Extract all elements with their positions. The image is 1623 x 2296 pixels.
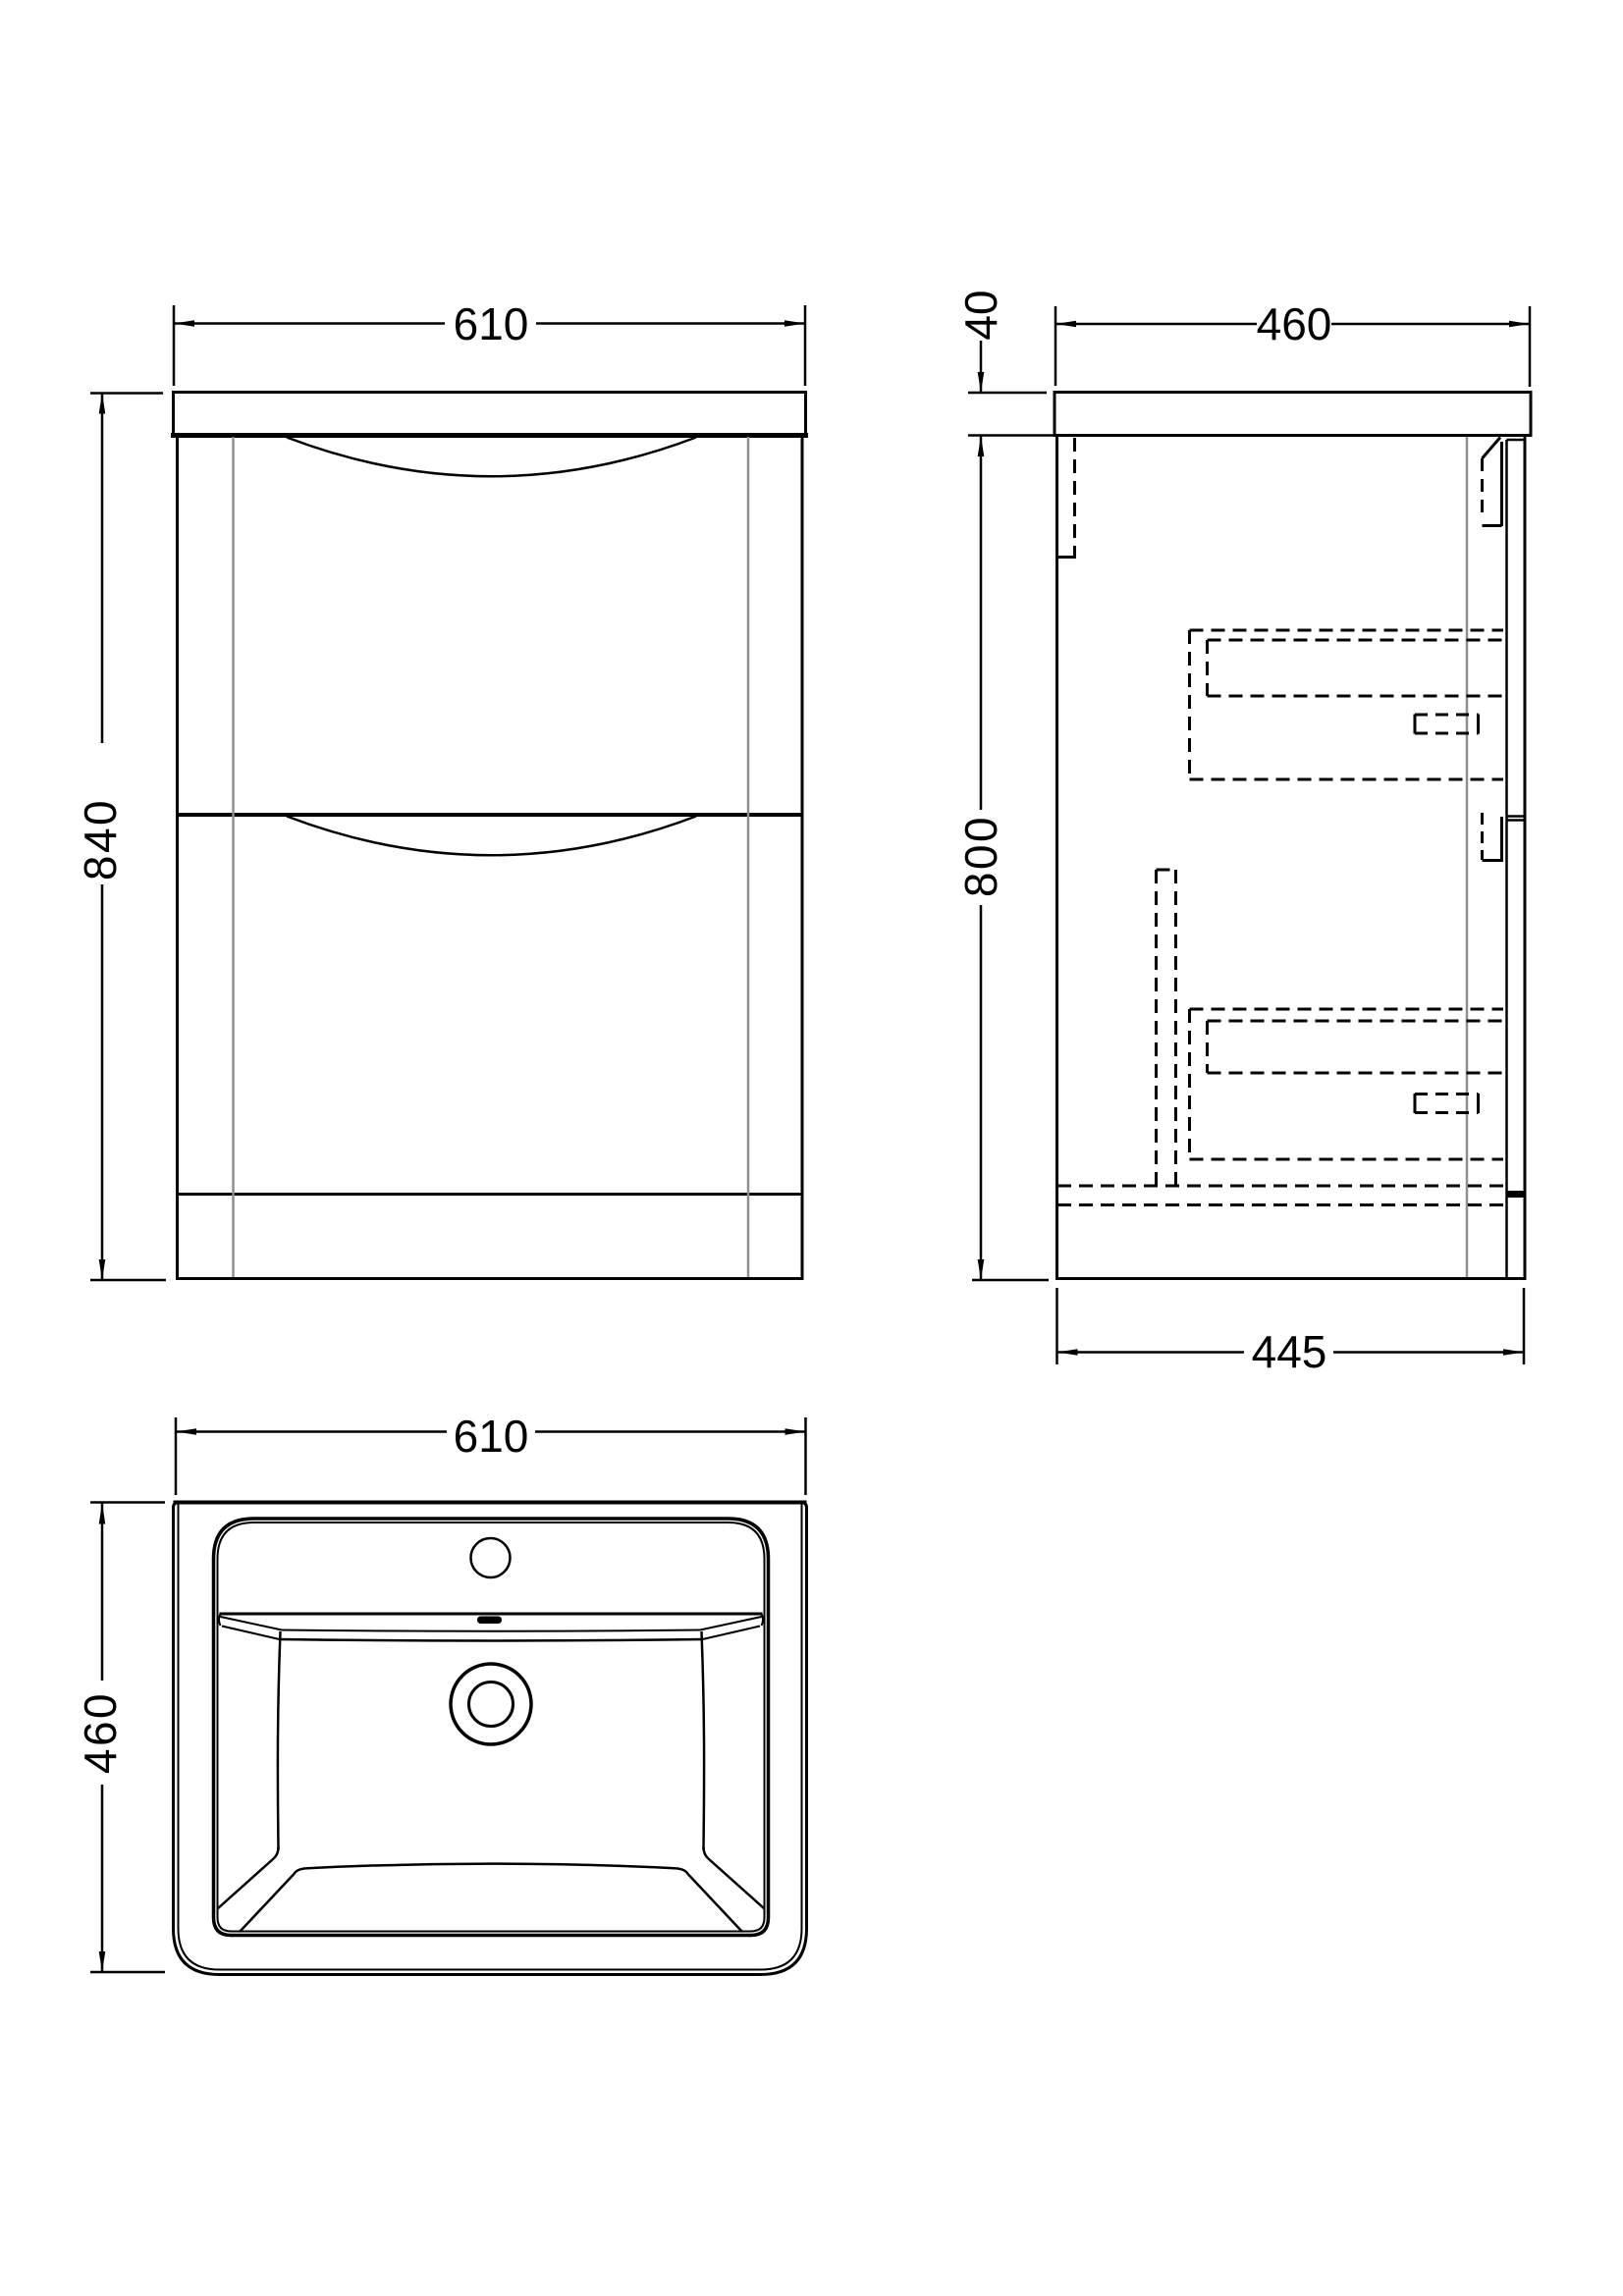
svg-text:610: 610 bbox=[454, 1411, 529, 1462]
svg-text:800: 800 bbox=[955, 815, 1006, 897]
svg-text:40: 40 bbox=[955, 290, 1006, 340]
svg-text:445: 445 bbox=[1252, 1326, 1327, 1377]
svg-text:460: 460 bbox=[75, 1691, 126, 1774]
svg-text:610: 610 bbox=[454, 298, 529, 349]
svg-text:460: 460 bbox=[1257, 298, 1332, 349]
svg-text:840: 840 bbox=[75, 798, 126, 881]
